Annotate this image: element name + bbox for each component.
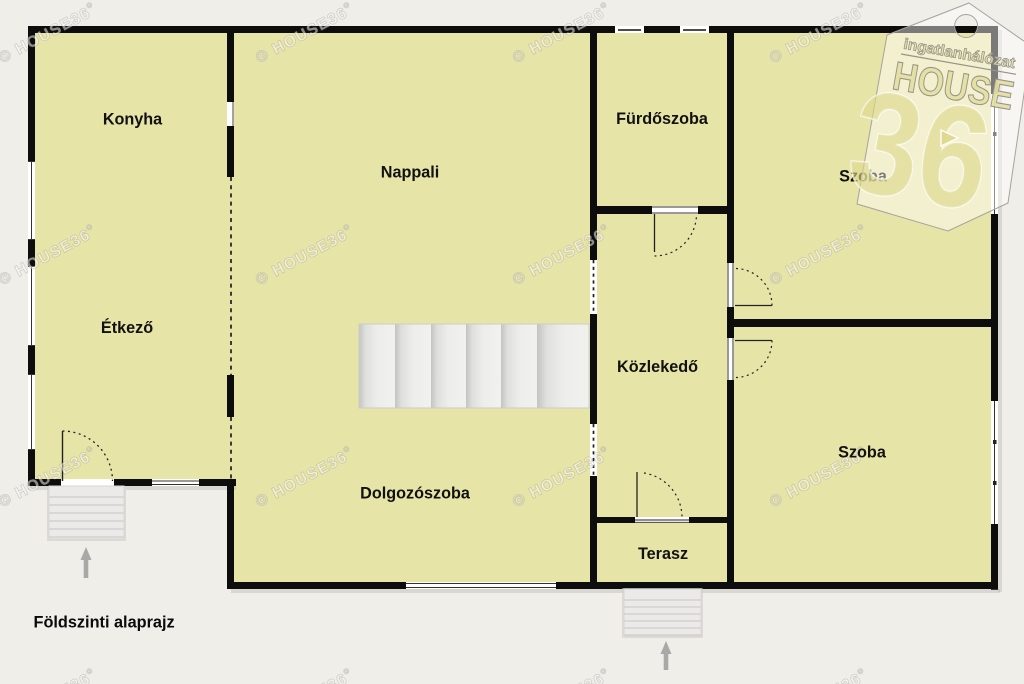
- svg-text:Fürdőszoba: Fürdőszoba: [616, 110, 709, 128]
- svg-text:Étkező: Étkező: [101, 318, 153, 337]
- svg-text:Konyha: Konyha: [103, 111, 163, 129]
- svg-text:Közlekedő: Közlekedő: [617, 358, 698, 376]
- svg-text:Terasz: Terasz: [638, 545, 688, 563]
- svg-text:Szoba: Szoba: [838, 444, 887, 462]
- svg-text:Dolgozószoba: Dolgozószoba: [360, 485, 471, 503]
- svg-text:36: 36: [839, 58, 1002, 241]
- svg-text:Nappali: Nappali: [381, 164, 439, 182]
- svg-text:Földszinti alaprajz: Földszinti alaprajz: [34, 614, 175, 632]
